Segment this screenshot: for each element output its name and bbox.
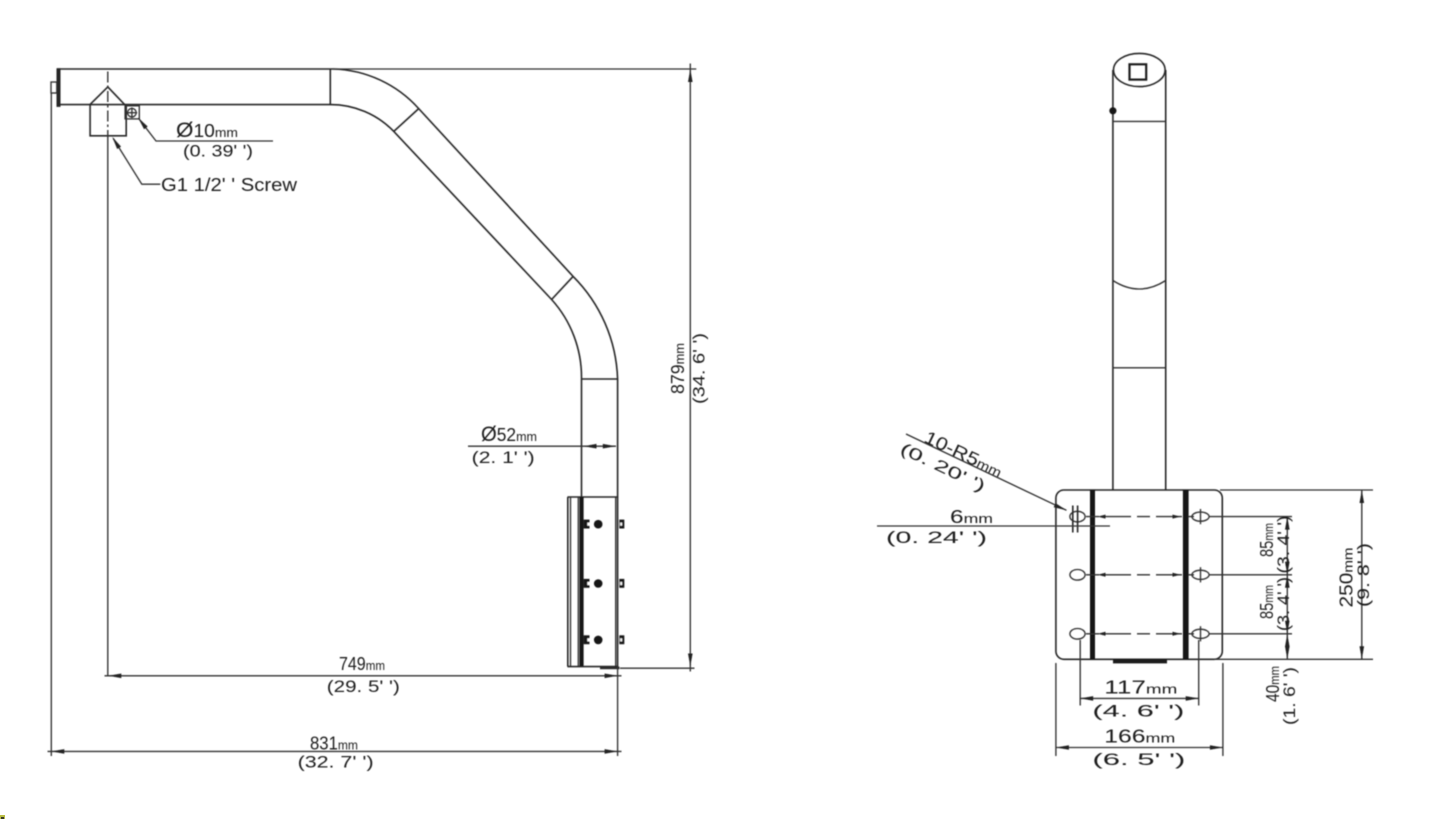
svg-text:(3. 4' '): (3. 4' ') <box>1275 577 1293 631</box>
svg-text:(29. 5' '): (29. 5' ') <box>327 678 400 696</box>
svg-text:G1 1/2' ' Screw: G1 1/2' ' Screw <box>161 175 298 195</box>
svg-text:(0. 24' '): (0. 24' ') <box>886 529 987 547</box>
svg-text:(34. 6' '): (34. 6' ') <box>691 333 709 404</box>
svg-text:(32. 7' '): (32. 7' ') <box>298 754 374 772</box>
svg-text:(2. 1' '): (2. 1' ') <box>472 449 535 467</box>
svg-text:(3. 4' '): (3. 4' ') <box>1275 516 1293 574</box>
svg-text:(0. 39' '): (0. 39' ') <box>183 143 253 161</box>
svg-text:(9. 8' '): (9. 8' ') <box>1355 543 1373 607</box>
svg-text:(6. 5' '): (6. 5' ') <box>1092 751 1185 769</box>
svg-text:(1. 6' '): (1. 6' ') <box>1281 667 1299 725</box>
svg-text:(4. 6' '): (4. 6' ') <box>1092 703 1184 721</box>
